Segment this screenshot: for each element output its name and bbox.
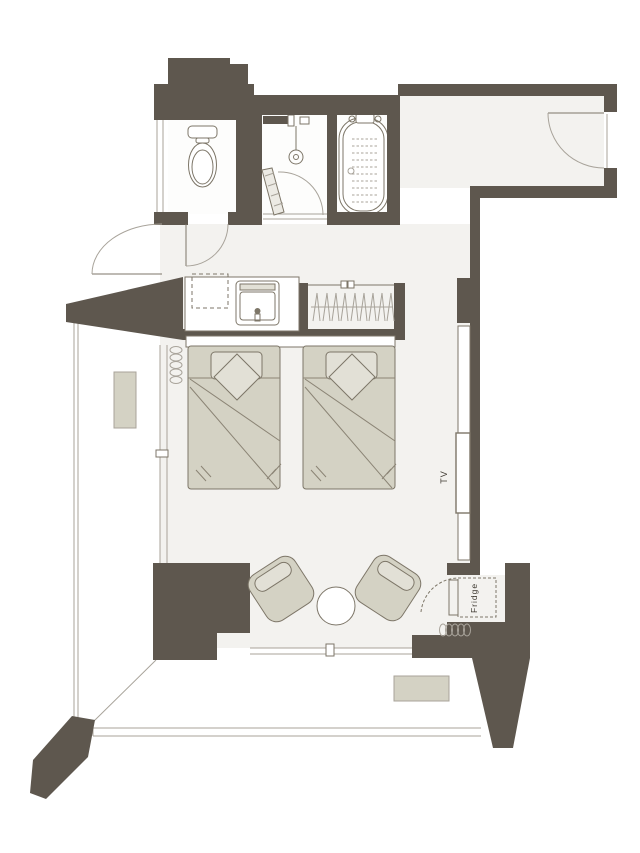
wall-bath-bottom-b [228, 212, 236, 225]
wall-closet-right [394, 283, 405, 330]
wall-entry-corner [604, 84, 617, 112]
floor-plan-page: TV Fridge [0, 0, 640, 853]
hallway-door [92, 224, 162, 274]
vanity-area [185, 274, 299, 331]
tv-label: TV [439, 470, 449, 484]
wall-south-east-band [412, 635, 530, 658]
bathtub-icon [339, 114, 388, 215]
sink-icon [236, 281, 279, 325]
pier-southwest [30, 716, 95, 799]
closet-door-clip [348, 281, 354, 288]
balcony-edge-diagonal [94, 660, 156, 721]
window-south-mullion [326, 644, 334, 656]
wall-entry-top [398, 84, 617, 96]
wall-east-column [457, 278, 480, 323]
wall-west-tapered [66, 277, 183, 340]
window-west-mullion [156, 450, 168, 457]
ac-unit-icon-south [394, 676, 449, 701]
bed-2 [303, 346, 396, 489]
headboard [186, 336, 395, 347]
tv-unit [456, 433, 470, 513]
wall-bath-bottom-c [337, 212, 400, 225]
entry-hall-floor [398, 96, 604, 188]
ac-unit-icon-west [114, 372, 136, 428]
wall-bath-top [248, 95, 400, 115]
toilet-icon [188, 126, 217, 187]
wall-niche-top [447, 563, 480, 575]
coffee-table-icon [317, 587, 355, 625]
pier-southeast [472, 658, 530, 748]
closet-door-clip [341, 281, 347, 288]
wall-toilet-shower-divider [236, 113, 262, 225]
wall-east [470, 198, 480, 563]
floor-plan-svg: TV Fridge [0, 0, 640, 853]
balcony-railing-south [93, 721, 481, 736]
balcony-railing-west [74, 318, 78, 719]
wall-bath-east [387, 95, 400, 225]
wall-north-chimney [168, 58, 248, 86]
bed-1 [188, 346, 281, 489]
fridge-label: Fridge [469, 583, 479, 613]
door-swing-icon [92, 224, 162, 274]
wall-shower-tub-divider [327, 114, 337, 225]
window-toilet-west [157, 120, 163, 212]
wall-bath-bottom-a [154, 212, 188, 225]
wall-entry-bottom [470, 186, 617, 198]
